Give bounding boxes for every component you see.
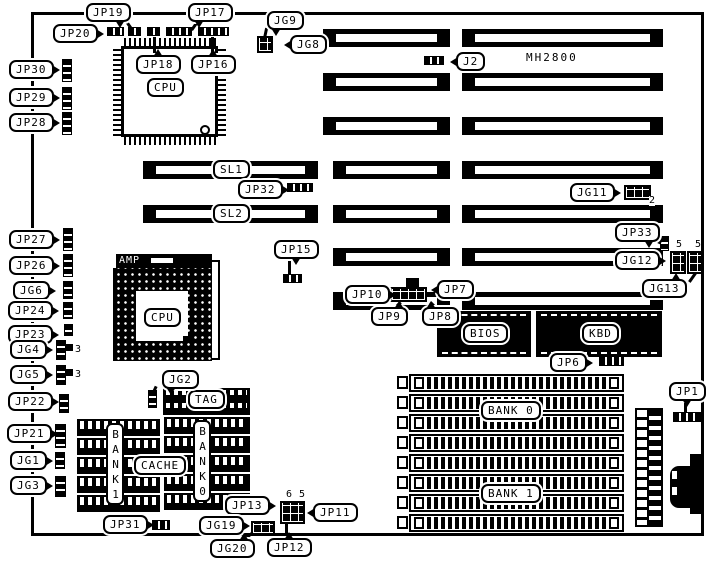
jumper-jp15 xyxy=(283,274,302,283)
callout-jp15: JP15 xyxy=(274,240,319,259)
callout-jg20: JG20 xyxy=(210,539,255,558)
callout-jp30: JP30 xyxy=(9,60,54,79)
callout-jp17: JP17 xyxy=(188,3,233,22)
simm-socket xyxy=(409,514,624,532)
callout-jp21: JP21 xyxy=(7,424,52,443)
jumper-j2 xyxy=(424,56,444,65)
simm-socket-ear xyxy=(397,416,408,429)
pin-number-label: 3 xyxy=(75,345,81,355)
callout-jp12: JP12 xyxy=(267,538,312,557)
callout-jg8: JG8 xyxy=(290,35,327,54)
callout-jp7: JP7 xyxy=(437,280,474,299)
callout-jp16: JP16 xyxy=(191,55,236,74)
simm-latch xyxy=(609,397,619,409)
simm-socket-ear xyxy=(397,476,408,489)
callout-jg12: JG12 xyxy=(615,251,660,270)
simm-latch xyxy=(414,377,424,389)
isa-slot-segment xyxy=(462,161,663,179)
jumper-jp24 xyxy=(63,302,73,319)
simm-latch xyxy=(414,457,424,469)
memory-bank0-label: BANK 0 xyxy=(481,401,541,420)
jumper-jp26 xyxy=(63,254,73,277)
power-connector xyxy=(635,408,663,527)
simm-contacts xyxy=(427,517,606,529)
isa-slot-segment xyxy=(333,248,450,266)
jumper-jp6 xyxy=(599,356,624,366)
pin-number-label: 2 xyxy=(649,196,655,206)
qfp-pin1-mark xyxy=(200,125,210,135)
callout-jp22: JP22 xyxy=(8,392,53,411)
kbd-label: KBD xyxy=(582,324,619,343)
jumper-jp7-cap xyxy=(406,278,419,287)
jumper-jg5-cap xyxy=(66,369,73,376)
callout-jp27: JP27 xyxy=(9,230,54,249)
callout-jg1: JG1 xyxy=(10,451,47,470)
keyboard-din-connector xyxy=(690,454,704,514)
callout-jp10: JP10 xyxy=(345,285,390,304)
jumper-jp17 xyxy=(166,27,192,36)
pin-number-label: 5 xyxy=(695,240,701,250)
callout-jp31: JP31 xyxy=(103,515,148,534)
slot-sl2-label: SL2 xyxy=(213,204,250,223)
tag-label: TAG xyxy=(188,390,225,409)
simm-socket xyxy=(409,454,624,472)
pin-number-label: 6 xyxy=(286,490,292,500)
callout-jp11: JP11 xyxy=(313,503,358,522)
power-connector-pins xyxy=(637,410,649,525)
isa-slot-segment xyxy=(462,73,663,91)
callout-j2: J2 xyxy=(456,52,485,71)
callout-jg9: JG9 xyxy=(267,11,304,30)
isa-slot-segment xyxy=(333,161,450,179)
callout-jp13: JP13 xyxy=(225,496,270,515)
simm-latch xyxy=(609,517,619,529)
callout-jp19: JP19 xyxy=(86,3,131,22)
callout-jp1: JP1 xyxy=(669,382,706,401)
callout-jp26: JP26 xyxy=(9,256,54,275)
qfp-pins-bottom xyxy=(124,136,216,145)
callout-jp6: JP6 xyxy=(550,353,587,372)
isa-slot-segment xyxy=(323,117,450,135)
callout-jg2: JG2 xyxy=(162,370,199,389)
memory-bank1-label: BANK 1 xyxy=(481,484,541,503)
simm-latch xyxy=(414,497,424,509)
pin-number-label: 3 xyxy=(75,370,81,380)
callout-jp29: JP29 xyxy=(9,88,54,107)
jumper-jp18 xyxy=(147,27,160,36)
jumper-jp1 xyxy=(673,412,701,422)
cache-bank1-label: BANK1 xyxy=(106,423,124,505)
pin-number-label: 5 xyxy=(299,490,305,500)
callout-jp24: JP24 xyxy=(8,301,53,320)
jumper-jg6 xyxy=(63,281,73,299)
motherboard-jumper-diagram: MH2800 CPU AMP CPU TAG BANK1 BANK0 CACHE xyxy=(0,0,707,561)
callout-jg3: JG3 xyxy=(10,476,47,495)
jumper-jp27 xyxy=(63,228,73,251)
din-notch xyxy=(672,471,677,479)
simm-latch xyxy=(609,417,619,429)
simm-latch xyxy=(609,477,619,489)
socket-bar-window xyxy=(150,257,174,264)
callout-jg5: JG5 xyxy=(10,365,47,384)
simm-latch xyxy=(414,397,424,409)
jumper-jp33 xyxy=(660,236,669,251)
power-connector-pins xyxy=(649,410,661,525)
simm-latch xyxy=(414,517,424,529)
simm-latch xyxy=(609,437,619,449)
simm-latch xyxy=(414,437,424,449)
simm-contacts xyxy=(427,437,606,449)
simm-latch xyxy=(609,457,619,469)
callout-jp32: JP32 xyxy=(238,180,283,199)
simm-socket-ear xyxy=(397,516,408,529)
callout-jg11: JG11 xyxy=(570,183,615,202)
isa-slot-segment xyxy=(462,292,663,310)
simm-socket xyxy=(409,434,624,452)
simm-contacts xyxy=(427,377,606,389)
din-notch xyxy=(672,487,677,495)
cache-bank0-label: BANK0 xyxy=(193,420,211,502)
callout-jp18: JP18 xyxy=(136,55,181,74)
cache-label: CACHE xyxy=(134,456,186,475)
callout-jp20: JP20 xyxy=(53,24,98,43)
isa-slot-segment xyxy=(462,205,663,223)
jumper-jp23 xyxy=(64,324,73,336)
jumper-jg11 xyxy=(624,185,651,200)
socket-brand-label: AMP xyxy=(119,255,140,266)
jumper-jg4-cap xyxy=(66,344,73,351)
isa-slot-segment xyxy=(323,29,450,47)
callout-jp33: JP33 xyxy=(615,223,660,242)
simm-socket-ear xyxy=(397,496,408,509)
cpu-chip-label: CPU xyxy=(147,78,184,97)
callout-jp8: JP8 xyxy=(422,307,459,326)
pga-pin1-mark xyxy=(183,336,190,343)
callout-jp28: JP28 xyxy=(9,113,54,132)
simm-latch xyxy=(609,497,619,509)
simm-socket-ear xyxy=(397,376,408,389)
slot-sl1-label: SL1 xyxy=(213,160,250,179)
jumper-jg19-jg20 xyxy=(251,521,275,535)
jumper-jg13 xyxy=(687,251,703,274)
simm-socket-ear xyxy=(397,396,408,409)
bios-label: BIOS xyxy=(463,324,508,343)
simm-contacts xyxy=(427,457,606,469)
isa-slot-segment xyxy=(323,73,450,91)
callout-jp9: JP9 xyxy=(371,307,408,326)
simm-latch xyxy=(609,377,619,389)
simm-socket-ear xyxy=(397,456,408,469)
callout-jg13: JG13 xyxy=(642,279,687,298)
callout-jg19: JG19 xyxy=(199,516,244,535)
isa-slot-segment xyxy=(462,117,663,135)
isa-slot-segment xyxy=(462,29,663,47)
isa-slot-segment xyxy=(333,205,450,223)
simm-socket-ear xyxy=(397,436,408,449)
simm-latch xyxy=(414,477,424,489)
socket-cpu-label: CPU xyxy=(144,308,181,327)
callout-jg6: JG6 xyxy=(13,281,50,300)
simm-socket xyxy=(409,374,624,392)
pin-number-label: 5 xyxy=(676,240,682,250)
simm-latch xyxy=(414,417,424,429)
board-model-text: MH2800 xyxy=(526,51,578,64)
callout-jg4: JG4 xyxy=(10,340,47,359)
